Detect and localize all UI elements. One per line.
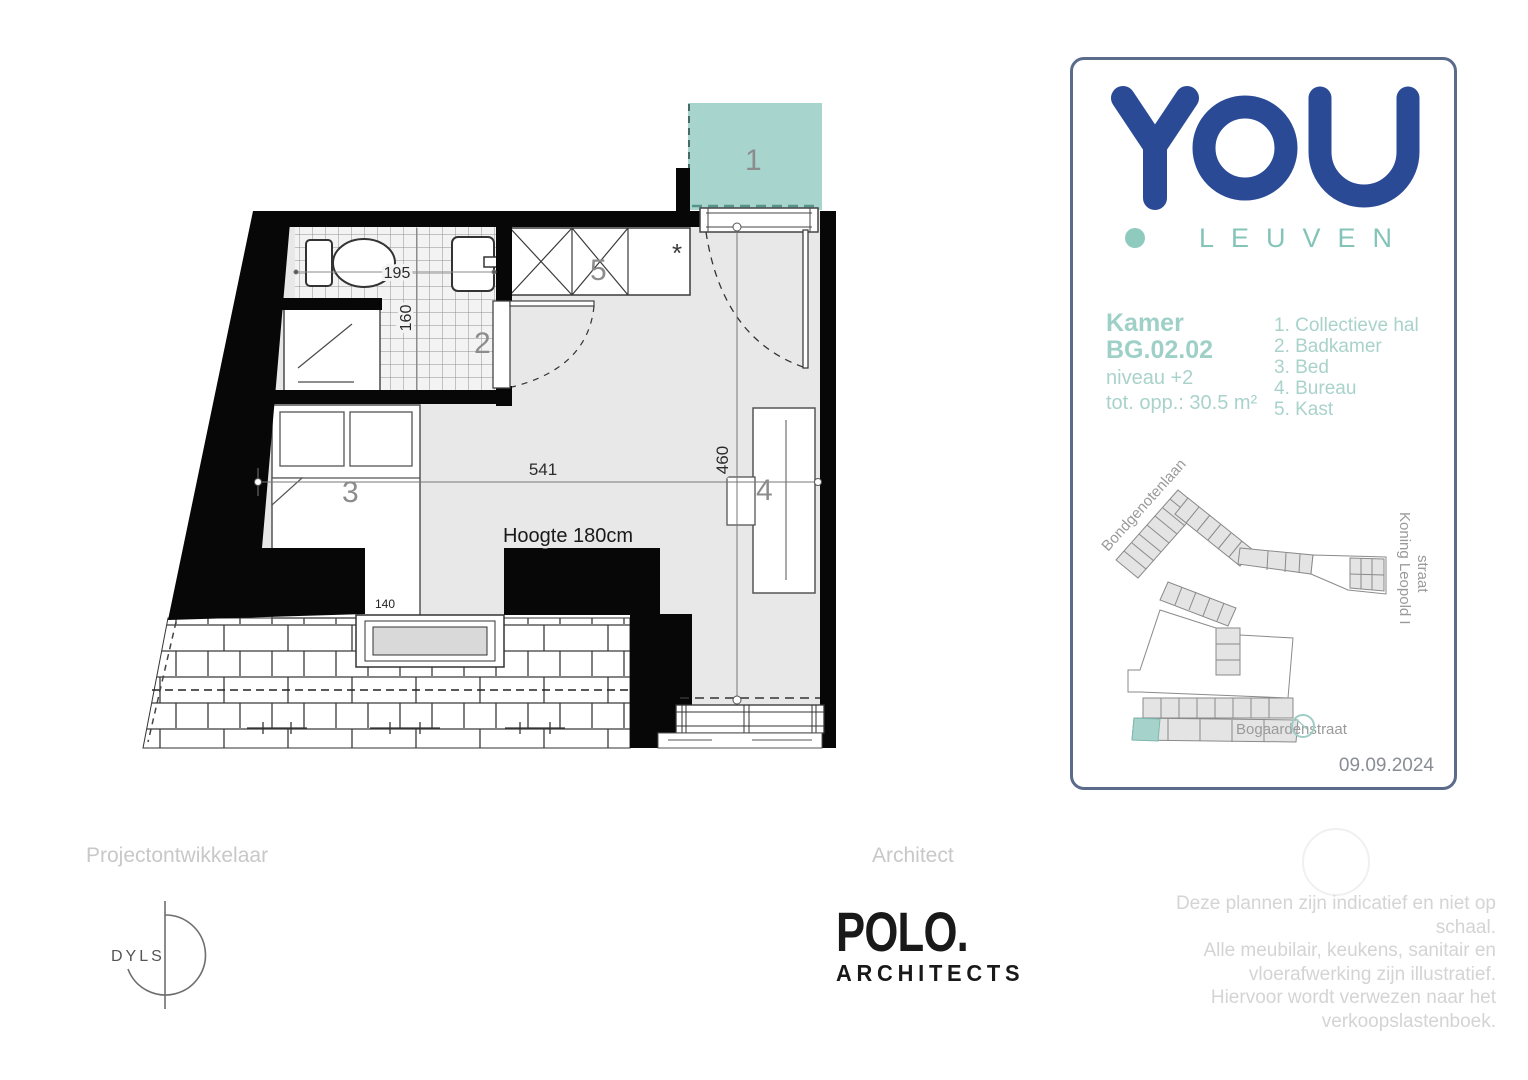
disclaimer-line: schaal. [1156, 916, 1496, 940]
street-koning-leopold-2: straat [1414, 555, 1431, 593]
window-south [658, 698, 824, 748]
dim-bed-width: 140 [375, 597, 395, 611]
architect-sub: ARCHITECTS [836, 960, 1024, 987]
door-leaf [510, 301, 594, 306]
unit-info-card: LEUVEN Kamer BG.02.02 niveau +2 tot. opp… [1070, 57, 1457, 790]
legend-item: 4. Bureau [1274, 378, 1419, 399]
toilet [306, 239, 395, 287]
unit-type: Kamer [1106, 310, 1213, 337]
disclaimer-line: vloerafwerking zijn illustratief. [1156, 963, 1496, 987]
you-leuven-logo: LEUVEN [1073, 60, 1460, 300]
legend-item: 3. Bed [1274, 357, 1419, 378]
door-leaf [803, 230, 808, 368]
legend-item: 1. Collectieve hal [1274, 315, 1419, 336]
logo-dot [1125, 228, 1145, 248]
site-map-unit-highlight [1132, 718, 1160, 741]
unit-level: niveau +2 [1106, 366, 1257, 391]
dim-room-width: 541 [529, 460, 557, 479]
unit-code: BG.02.02 [1106, 337, 1213, 364]
dim-bath-width: 195 [384, 265, 411, 282]
window-terrace [356, 615, 504, 667]
dim-room-depth: 460 [713, 446, 732, 474]
disclaimer-line: Hiervoor wordt verwezen naar het [1156, 986, 1496, 1010]
pillow [280, 412, 344, 466]
label-bathroom: 2 [474, 327, 491, 360]
architect-label: Architect [872, 844, 954, 868]
washbasin [452, 237, 498, 291]
label-closet: 5 [590, 254, 607, 287]
pillow [350, 412, 412, 466]
label-hall: 1 [745, 144, 762, 177]
closet-asterisk: * [672, 238, 682, 268]
height-note: Hoogte 180cm [503, 525, 633, 547]
site-buildings [1116, 490, 1386, 742]
polo-logo: POLO. ARCHITECTS [836, 906, 1034, 987]
label-bed: 3 [342, 476, 359, 509]
room-legend: 1. Collectieve hal 2. Badkamer 3. Bed 4.… [1274, 315, 1419, 420]
disclaimer-line: verkoopslastenboek. [1156, 1010, 1496, 1034]
dim-bath-depth: 160 [398, 305, 415, 332]
legend-item: 5. Kast [1274, 399, 1419, 420]
unit-area: tot. opp.: 30.5 m² [1106, 391, 1257, 416]
shower [284, 308, 380, 392]
disclaimer: Deze plannen zijn indicatief en niet op … [1156, 892, 1496, 1033]
developer-name: DYLS [111, 948, 165, 965]
architect-name: POLO. [836, 906, 991, 958]
dyls-logo: DYLS [108, 885, 228, 1015]
logo-city: LEUVEN [1199, 223, 1409, 253]
developer-label: Projectontwikkelaar [86, 844, 268, 868]
unit-title: Kamer BG.02.02 [1106, 310, 1213, 364]
disclaimer-line: Alle meubilair, keukens, sanitair en [1156, 939, 1496, 963]
low-height-wall [504, 548, 660, 615]
plan-date: 09.09.2024 [1339, 755, 1434, 777]
disclaimer-line: Deze plannen zijn indicatief en niet op [1156, 892, 1496, 916]
legend-item: 2. Badkamer [1274, 336, 1419, 357]
unit-meta: niveau +2 tot. opp.: 30.5 m² [1106, 366, 1257, 416]
watermark-circle [1302, 828, 1370, 896]
you-wordmark [1123, 98, 1408, 198]
label-desk: 4 [756, 474, 773, 507]
chair [727, 477, 755, 525]
site-map: Bondgenotenlaan Koning Leopold I straat … [1088, 460, 1448, 760]
street-koning-leopold: Koning Leopold I [1396, 512, 1413, 625]
